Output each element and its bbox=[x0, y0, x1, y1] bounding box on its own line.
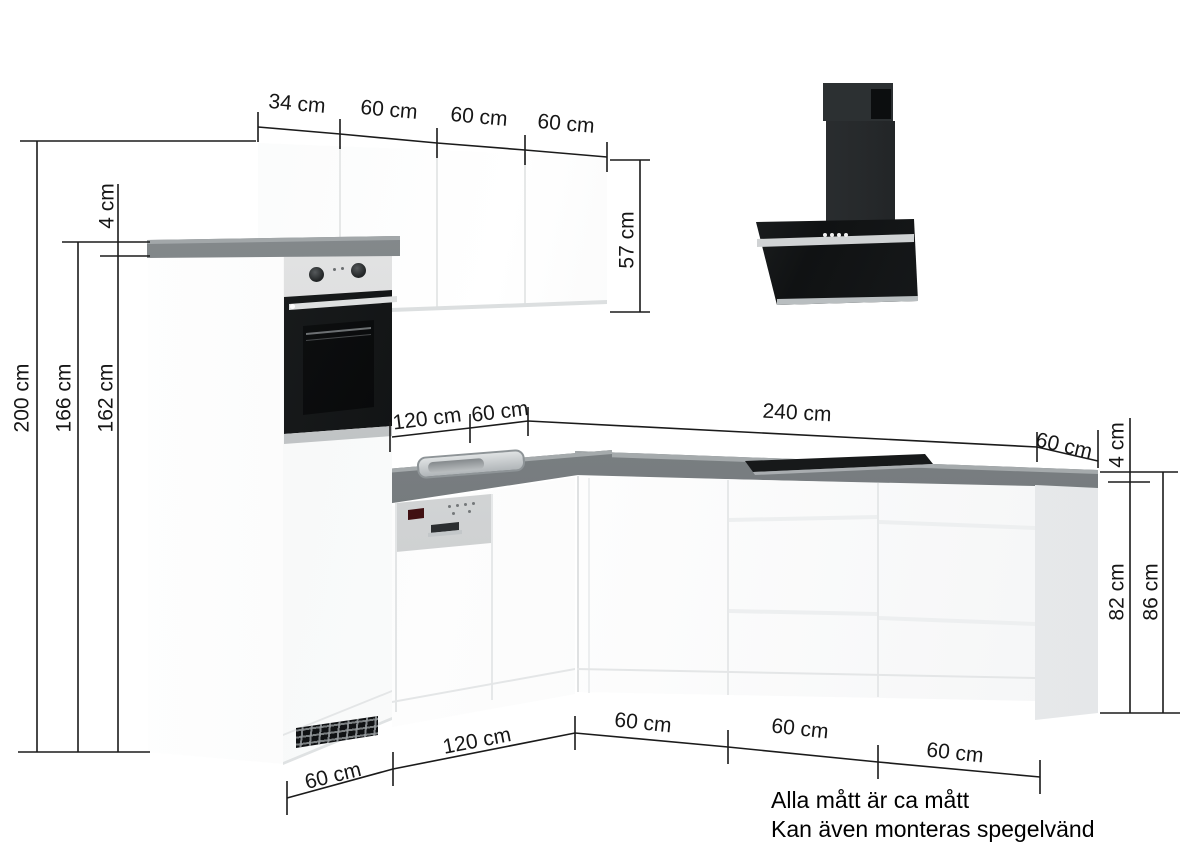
note-approx-measurements: Alla mått är ca mått bbox=[771, 786, 969, 815]
dim-label-base-total-height: 86 cm bbox=[1139, 563, 1162, 620]
dishwasher-button-icon bbox=[452, 512, 455, 515]
dim-label-corner: 60 cm bbox=[470, 397, 530, 427]
dim-label-upper-3: 60 cm bbox=[450, 103, 509, 131]
dim-label-base-right-1: 60 cm bbox=[613, 709, 672, 738]
dim-label-worktop-bottom-height: 162 cm bbox=[94, 364, 117, 433]
dim-label-left-run: 120 cm bbox=[391, 403, 462, 434]
dishwasher-button-icon bbox=[468, 510, 471, 513]
kitchen-dimension-diagram: 34 cm 60 cm 60 cm 60 cm 200 cm 166 cm 16… bbox=[0, 0, 1200, 857]
dim-label-upper-2: 60 cm bbox=[360, 96, 419, 124]
dim-label-right-worktop-thickness: 4 cm bbox=[1105, 422, 1128, 468]
note-mirror-mountable: Kan även monteras spegelvänd bbox=[771, 815, 1095, 844]
hood-button-icon bbox=[837, 233, 841, 237]
oven-indicator-icon bbox=[341, 267, 344, 270]
dim-label-worktop-top-height: 166 cm bbox=[52, 364, 75, 433]
dim-label-right-end-width: 60 cm bbox=[1034, 428, 1095, 463]
oven-handle-endcap-icon bbox=[290, 304, 295, 309]
dishwasher-button-icon bbox=[448, 505, 451, 508]
oven-knob-icon bbox=[351, 263, 366, 278]
tall-unit-side-panel bbox=[0, 0, 1200, 857]
hood-button-icon bbox=[823, 233, 827, 237]
dim-label-base-right-3: 60 cm bbox=[925, 739, 984, 768]
dim-label-base-left-2: 120 cm bbox=[441, 723, 513, 759]
dim-label-right-run: 240 cm bbox=[762, 400, 832, 427]
dim-label-total-height: 200 cm bbox=[10, 364, 33, 433]
hood-button-icon bbox=[830, 233, 834, 237]
dim-label-upper-1: 34 cm bbox=[268, 90, 327, 118]
dim-label-base-right-2: 60 cm bbox=[770, 715, 829, 744]
dim-label-base-left-1: 60 cm bbox=[302, 758, 363, 794]
dim-label-upper-4: 60 cm bbox=[537, 110, 596, 138]
dishwasher-button-icon bbox=[472, 502, 475, 505]
sink-bowl bbox=[428, 458, 485, 473]
oven-knob-icon bbox=[309, 267, 324, 282]
oven-indicator-icon bbox=[333, 268, 336, 271]
dishwasher-button-icon bbox=[464, 503, 467, 506]
dim-label-left-worktop-thickness: 4 cm bbox=[95, 183, 118, 229]
dishwasher-button-icon bbox=[456, 504, 459, 507]
hood-button-icon bbox=[844, 233, 848, 237]
dim-label-cabinet-height: 82 cm bbox=[1105, 563, 1128, 620]
dim-label-upper-cabinet-height: 57 cm bbox=[615, 211, 638, 268]
